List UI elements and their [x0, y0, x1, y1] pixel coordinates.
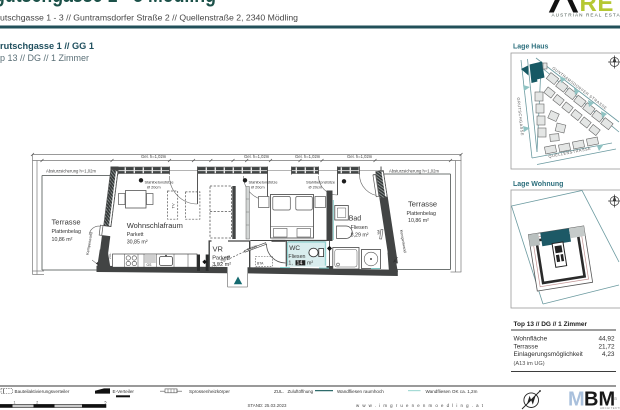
- svg-text:Gel. h=1,02m: Gel. h=1,02m: [347, 154, 373, 159]
- svg-text:m²: m²: [307, 261, 313, 267]
- svg-text:Terrasse: Terrasse: [52, 218, 81, 227]
- svg-text:Absturzsicherung h=1,02m: Absturzsicherung h=1,02m: [389, 169, 439, 174]
- svg-text:Gel. h=1,02m: Gel. h=1,02m: [244, 154, 270, 159]
- svg-text:ZUL.: ZUL.: [108, 252, 112, 259]
- svg-text:Wandfliesen raumhoch: Wandfliesen raumhoch: [337, 389, 384, 394]
- svg-text:Sprossenheizkörper: Sprossenheizkörper: [189, 389, 230, 394]
- svg-text:5: 5: [105, 400, 107, 404]
- svg-text:Bad: Bad: [349, 216, 362, 223]
- svg-text:10,86 m²: 10,86 m²: [52, 237, 73, 243]
- svg-text:Absturzsicherung h=1,02m: Absturzsicherung h=1,02m: [46, 169, 96, 174]
- svg-text:gutschgasse 1 - 3 Mödling: gutschgasse 1 - 3 Mödling: [0, 0, 216, 7]
- svg-text:Plattenbelag: Plattenbelag: [52, 229, 82, 235]
- svg-text:GS: GS: [147, 263, 153, 267]
- svg-text:21,72: 21,72: [599, 343, 615, 350]
- svg-text:ZUL.: ZUL.: [274, 389, 284, 394]
- svg-text:ARCHITEKTUR: ARCHITEKTUR: [600, 406, 620, 410]
- svg-text:Ø 20cm: Ø 20cm: [147, 185, 161, 190]
- svg-text:AUSTRIAN REAL ESTA: AUSTRIAN REAL ESTA: [552, 13, 620, 18]
- svg-text:STAND: 25.03.2023: STAND: 25.03.2023: [248, 403, 288, 408]
- svg-text:M: M: [568, 389, 585, 410]
- svg-text:E-Verteiler: E-Verteiler: [113, 389, 135, 394]
- svg-text:www.imgruenenmoedling.at: www.imgruenenmoedling.at: [356, 403, 484, 408]
- svg-text:4,23: 4,23: [602, 351, 615, 358]
- svg-text:Terrasse: Terrasse: [514, 343, 539, 350]
- svg-text:1: 1: [14, 400, 16, 404]
- svg-text:Kempenwand: Kempenwand: [86, 232, 94, 256]
- svg-text:Kempenwand: Kempenwand: [399, 229, 407, 253]
- svg-text:Parkett: Parkett: [127, 232, 144, 238]
- svg-text:BTA: BTA: [257, 262, 264, 266]
- svg-text:TV: TV: [171, 203, 176, 208]
- svg-text:30,85 m²: 30,85 m²: [127, 240, 148, 246]
- svg-text:rutschgasse 1 // GG 1: rutschgasse 1 // GG 1: [0, 41, 94, 51]
- svg-text:Lage Haus: Lage Haus: [513, 44, 549, 51]
- svg-text:utschgasse 1 - 3 // Guntramsdo: utschgasse 1 - 3 // Guntramsdorfer Straß…: [0, 14, 298, 23]
- svg-text:(A13 im UG): (A13 im UG): [514, 361, 545, 367]
- svg-text:Wandfliesen OK ca. 1,2m: Wandfliesen OK ca. 1,2m: [426, 389, 478, 394]
- svg-text:Ø 20cm: Ø 20cm: [251, 185, 265, 190]
- svg-text:Terrasse: Terrasse: [408, 200, 437, 209]
- svg-text:8,29 m²: 8,29 m²: [351, 233, 369, 239]
- svg-text:2: 2: [36, 400, 38, 404]
- svg-text:Gel. h=1,02m: Gel. h=1,02m: [141, 154, 167, 159]
- svg-text:WC: WC: [289, 245, 300, 252]
- svg-text:Zuluftöffnung: Zuluftöffnung: [288, 389, 314, 394]
- svg-text:Bauteilaktivierungsverteiler: Bauteilaktivierungsverteiler: [15, 389, 70, 394]
- svg-text:Ø 20cm: Ø 20cm: [309, 185, 323, 190]
- svg-text:Gel. h=1,02m: Gel. h=1,02m: [295, 154, 321, 159]
- svg-text:Wohnfläche: Wohnfläche: [514, 336, 548, 343]
- svg-text:14: 14: [297, 261, 303, 267]
- svg-text:1,: 1,: [288, 261, 292, 267]
- svg-text:3,92 m²: 3,92 m²: [212, 262, 231, 268]
- svg-text:90/230: 90/230: [246, 244, 257, 251]
- svg-text:VR: VR: [213, 245, 224, 254]
- svg-text:Plattenbelag: Plattenbelag: [407, 211, 437, 217]
- svg-text:N: N: [539, 389, 541, 393]
- svg-text:Einlagerungsmöglichkeit: Einlagerungsmöglichkeit: [514, 351, 583, 358]
- svg-text:44,92: 44,92: [599, 336, 615, 343]
- svg-text:Wohnschlafraum: Wohnschlafraum: [127, 221, 183, 230]
- svg-text:Fliesen: Fliesen: [351, 225, 368, 231]
- svg-text:10,86 m²: 10,86 m²: [408, 218, 429, 224]
- svg-text:Fliesen: Fliesen: [288, 254, 305, 260]
- svg-text:Lage Wohnung: Lage Wohnung: [513, 181, 563, 188]
- svg-text:p 13 // DG // 1 Zimmer: p 13 // DG // 1 Zimmer: [0, 53, 89, 63]
- svg-text:Top 13 // DG // 1 Zimmer: Top 13 // DG // 1 Zimmer: [514, 321, 588, 328]
- svg-text:a: a: [614, 396, 617, 402]
